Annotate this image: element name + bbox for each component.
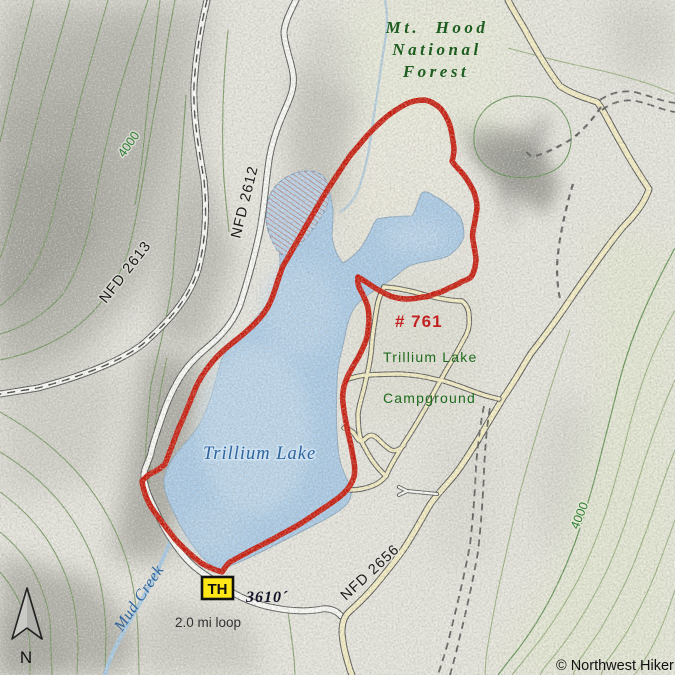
svg-text:TH: TH xyxy=(208,581,228,598)
svg-text:Forest: Forest xyxy=(402,62,469,81)
svg-text:N: N xyxy=(20,648,32,667)
svg-text:# 761: # 761 xyxy=(395,312,443,331)
svg-text:National: National xyxy=(391,40,481,59)
svg-text:Campground: Campground xyxy=(383,390,476,406)
svg-text:Mt. Hood: Mt. Hood xyxy=(385,18,489,37)
svg-text:Trillium Lake: Trillium Lake xyxy=(383,349,477,365)
svg-text:Trillium Lake: Trillium Lake xyxy=(203,444,316,464)
svg-text:© Northwest Hiker: © Northwest Hiker xyxy=(556,658,674,674)
svg-text:2.0 mi loop: 2.0 mi loop xyxy=(175,615,241,630)
svg-text:3610´: 3610´ xyxy=(245,589,288,606)
